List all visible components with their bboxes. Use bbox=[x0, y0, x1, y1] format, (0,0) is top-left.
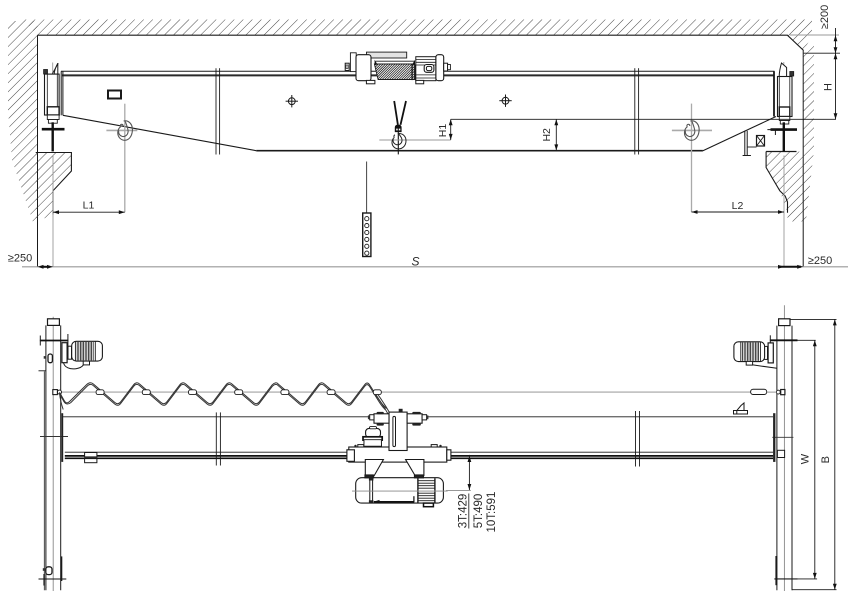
svg-text:3T:429: 3T:429 bbox=[458, 494, 470, 529]
svg-text:S: S bbox=[411, 255, 419, 269]
svg-text:B: B bbox=[820, 456, 832, 463]
svg-text:5T:490: 5T:490 bbox=[473, 494, 485, 529]
svg-text:≥250: ≥250 bbox=[808, 255, 832, 267]
svg-text:L1: L1 bbox=[83, 200, 95, 212]
svg-text:10T:591: 10T:591 bbox=[486, 492, 498, 533]
svg-text:H2: H2 bbox=[541, 128, 553, 142]
svg-text:L2: L2 bbox=[732, 200, 744, 212]
svg-text:≥200: ≥200 bbox=[819, 5, 831, 29]
svg-text:≥250: ≥250 bbox=[8, 253, 32, 265]
svg-text:W: W bbox=[800, 453, 812, 464]
svg-text:H1: H1 bbox=[437, 124, 449, 138]
svg-text:H: H bbox=[823, 83, 835, 91]
